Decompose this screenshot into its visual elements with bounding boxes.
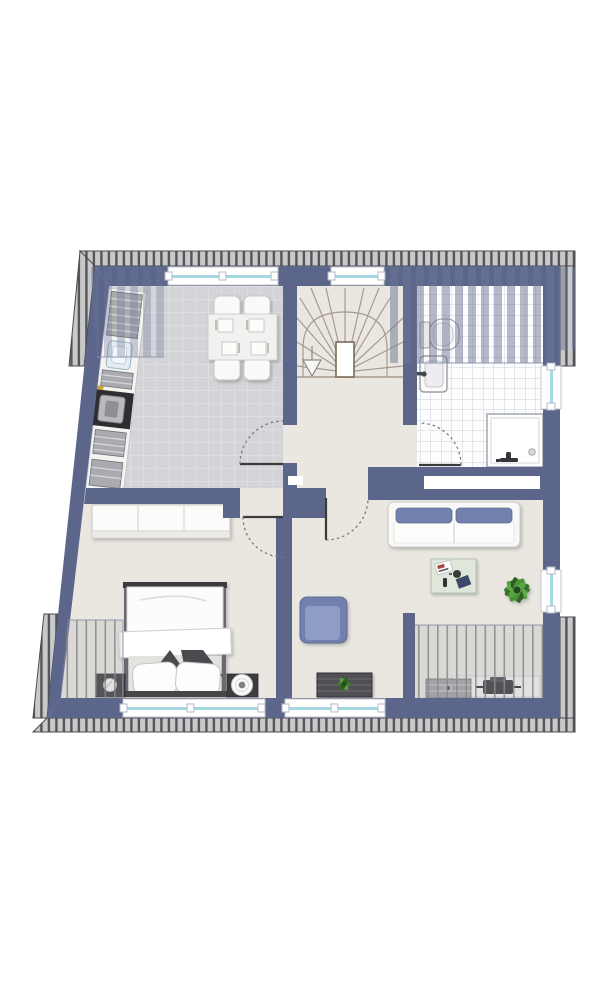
slope-hatch-bathroom — [390, 267, 560, 363]
appliance-front-3 — [93, 429, 127, 456]
nightstand-right — [227, 674, 258, 697]
wall-kitchen-stair — [283, 286, 297, 425]
roof-band-bottom — [33, 718, 575, 732]
bedroom-window — [120, 699, 265, 717]
living-window-right — [541, 567, 561, 613]
lowboard — [317, 673, 372, 697]
floor-plan-drawing — [0, 0, 603, 1000]
slope-hatch-bathroom-edge — [560, 267, 575, 350]
slope-hatch-bedroom — [60, 620, 123, 698]
bed-folded-blanket — [119, 628, 232, 658]
shower-drain — [529, 449, 535, 455]
wall-kitchen-bottom — [84, 488, 223, 504]
wall-niche-small — [288, 476, 303, 485]
remote — [443, 578, 447, 587]
wall-bedroom-living-divider — [276, 518, 292, 698]
stair-window — [328, 267, 385, 285]
stair-newel-post — [336, 342, 354, 377]
coffee-table — [431, 559, 476, 593]
armchair — [300, 597, 347, 643]
wall-bedroom-top-thick — [223, 488, 240, 518]
dining-chair — [214, 358, 240, 380]
bed-headboard — [123, 691, 227, 697]
roof-band-top — [80, 251, 575, 266]
appliance-front-4 — [89, 459, 123, 488]
appliance-front-2 — [101, 370, 134, 389]
dining-chair — [244, 358, 270, 380]
knee-wall — [403, 613, 415, 698]
slope-hatch-living — [415, 625, 543, 698]
shower — [487, 414, 543, 467]
bathroom-window — [541, 363, 561, 410]
wardrobe — [92, 505, 230, 538]
wall-niche-bathroom — [424, 476, 540, 489]
wall-hall-bedroom — [283, 488, 326, 518]
slope-hatch-kitchen — [90, 267, 164, 357]
cup — [453, 570, 461, 578]
double-bed — [119, 582, 232, 697]
sofa — [388, 502, 520, 547]
sofa-bolster — [456, 508, 512, 523]
roof-band-right-bottom — [560, 617, 575, 718]
sofa-bolster — [396, 508, 452, 523]
bed-duvet — [127, 587, 223, 635]
kitchen-window — [165, 267, 278, 285]
living-window-bottom — [282, 699, 385, 717]
floor-plan-page — [0, 0, 603, 1000]
